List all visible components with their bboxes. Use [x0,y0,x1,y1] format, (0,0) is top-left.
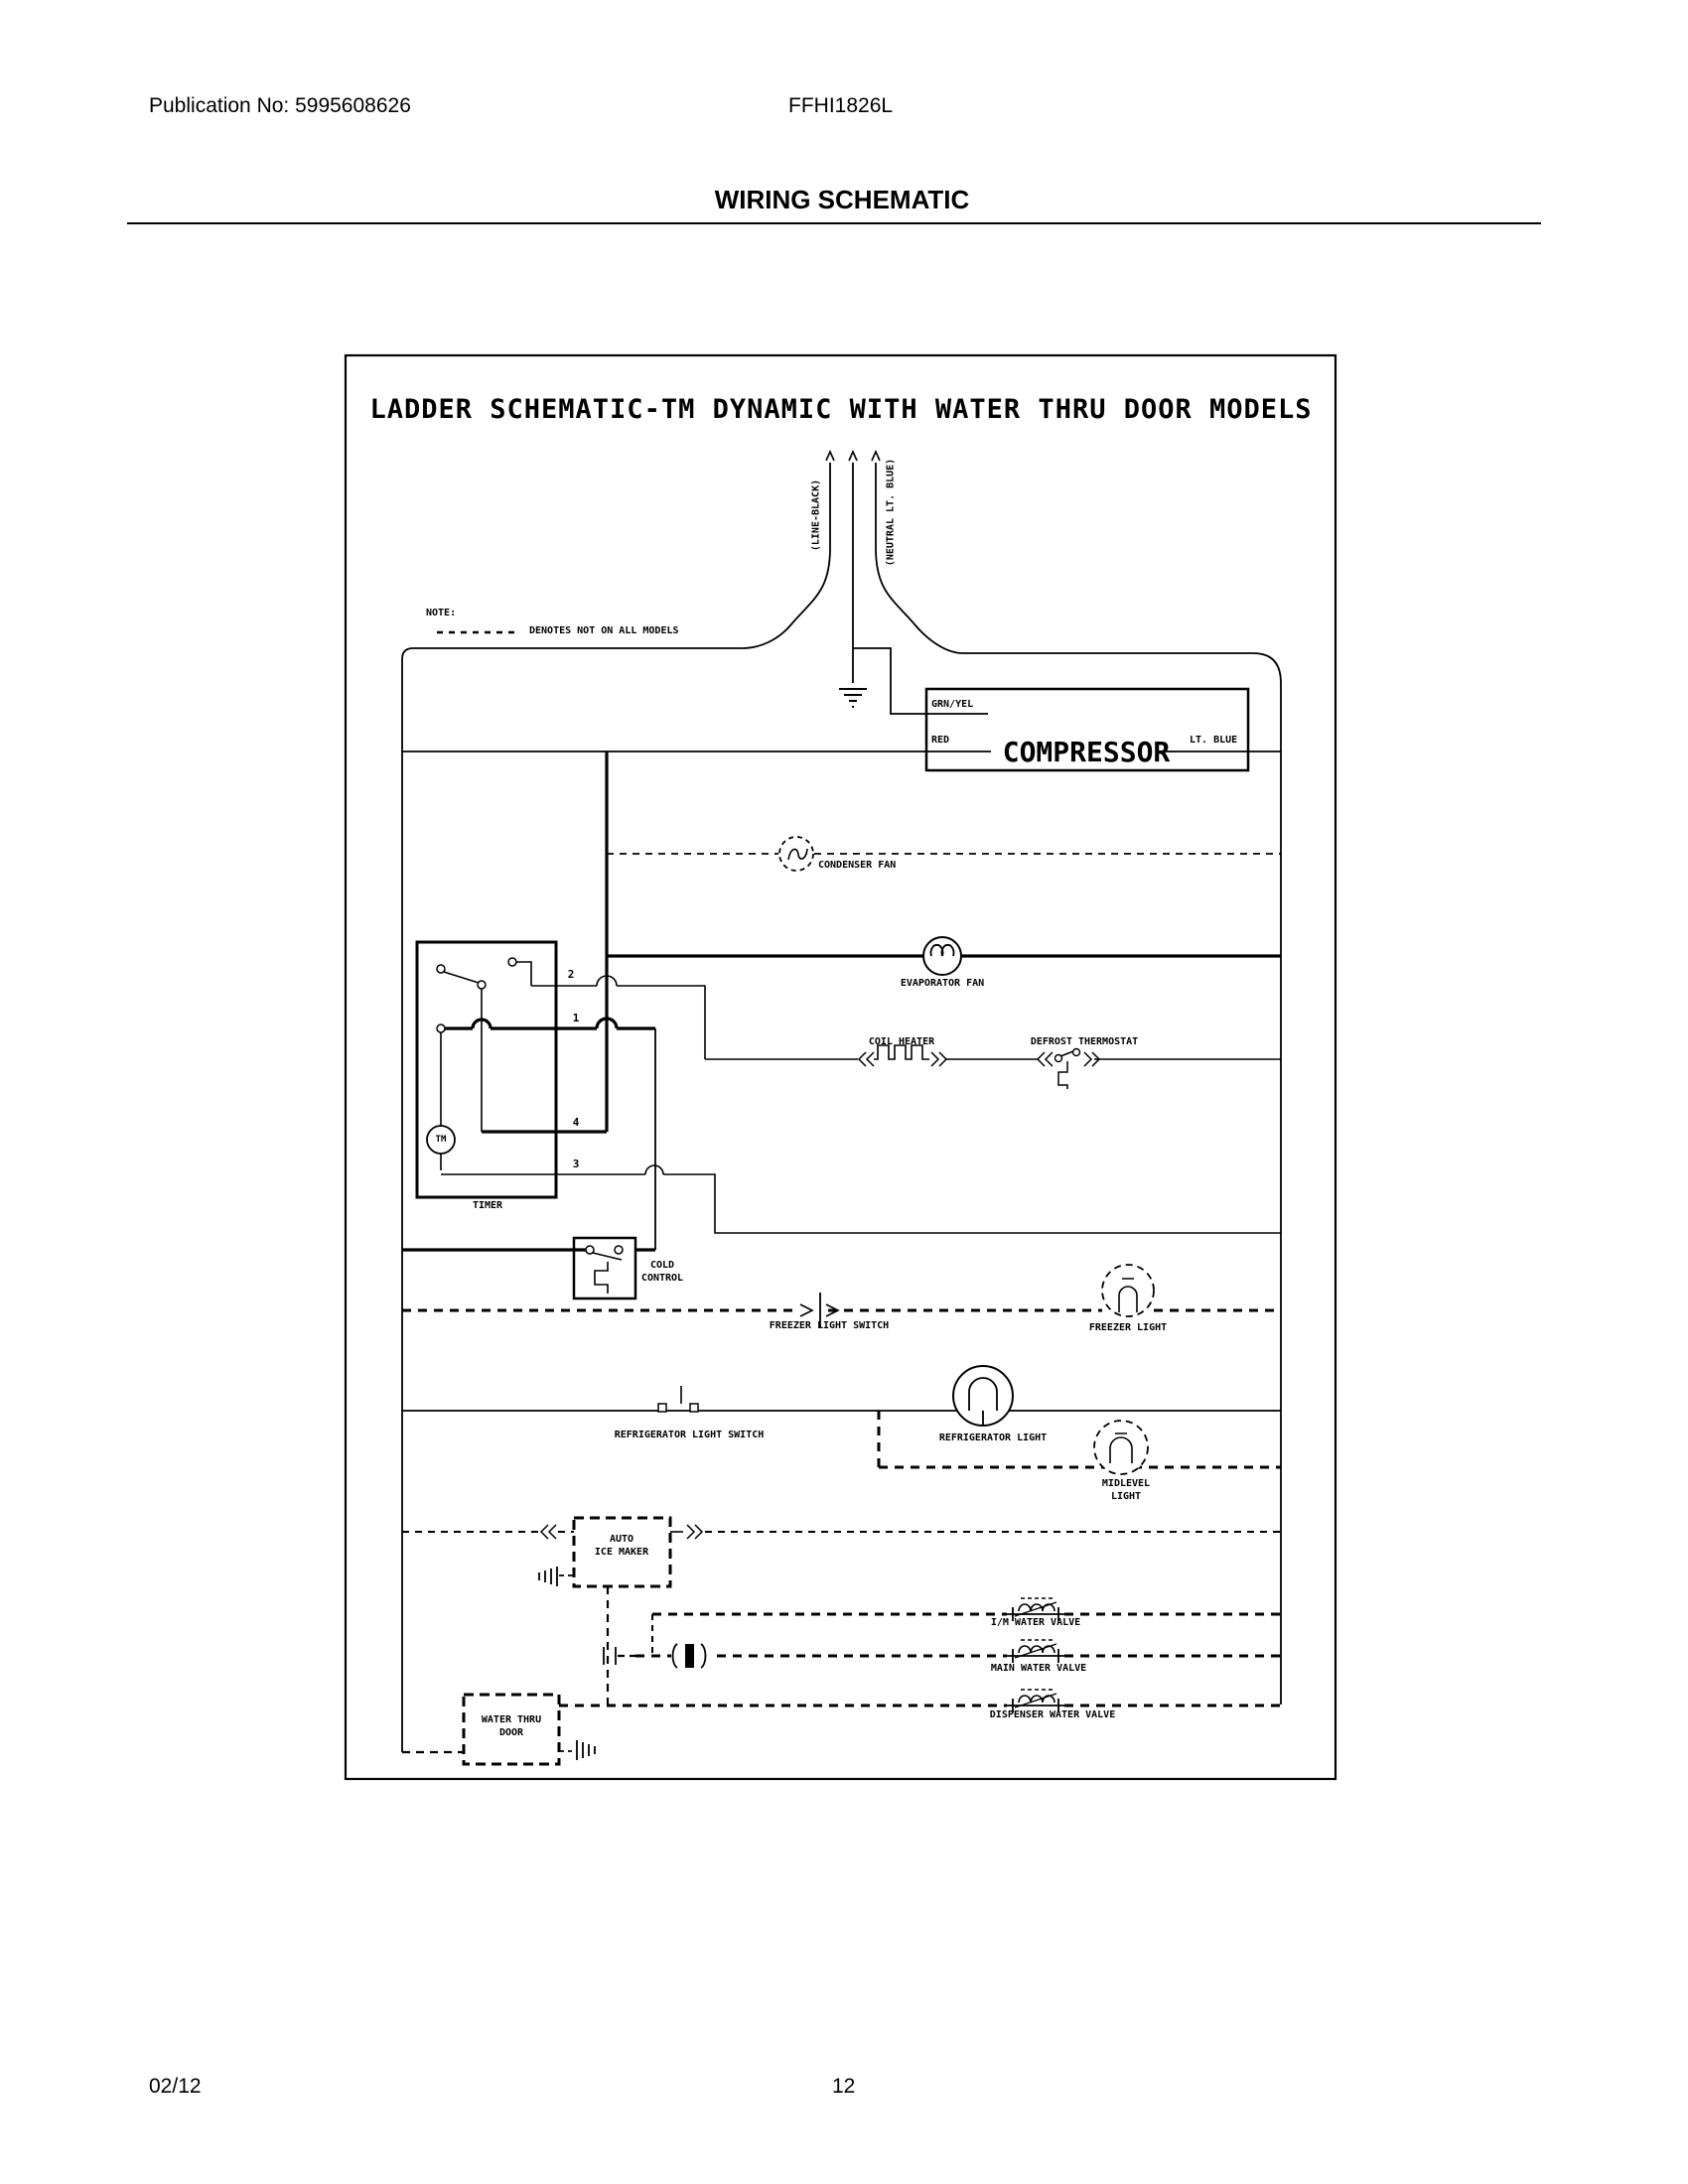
neutral-label: (NEUTRAL LT. BLUE) [886,459,897,566]
chassis-ground-icon [539,1567,557,1586]
fridge-switch-contact [658,1404,666,1412]
manual-page: Publication No: 5995608626 FFHI1826L WIR… [0,0,1688,2184]
lt-blue-label: LT. BLUE [1190,735,1237,746]
ice-maker-label-2: ICE MAKER [595,1547,648,1558]
timer-contact [437,965,445,973]
note-label: NOTE: [426,608,456,618]
connector-right-icon [931,1052,946,1066]
left-rail [402,463,830,1752]
connector-left-icon [541,1525,556,1539]
condenser-fan-label: CONDENSER FAN [818,860,896,871]
motor-winding-icon [931,945,954,956]
cold-contact [615,1246,623,1254]
cold-control-label-1: COLD [650,1260,674,1271]
midlevel-light-icon [1094,1421,1148,1474]
timer-terminal-4: 4 [573,1116,580,1129]
timer-line1 [441,1019,655,1028]
timer-terminal-1: 1 [573,1012,580,1024]
cold-contact [586,1246,594,1254]
timer-contact [437,1024,445,1032]
freezer-light-switch-label: FREEZER LIGHT SWITCH [770,1320,889,1331]
freezer-light-icon [1102,1265,1154,1316]
ground-wire [853,463,988,714]
timer-contact [478,981,486,989]
timer-line3 [441,1165,1281,1233]
connector-left-icon [1038,1052,1053,1066]
timer-motor-label: TM [436,1135,447,1145]
cold-control-label-2: CONTROL [641,1273,683,1284]
water-thru-door-label-1: WATER THRU [482,1714,541,1725]
evaporator-fan-label: EVAPORATOR FAN [901,978,984,989]
defrost-blade-icon [1060,1051,1073,1056]
footer-page-number: 12 [832,2075,855,2099]
right-rail [876,463,1281,1705]
compressor-label: COMPRESSOR [1003,736,1171,768]
ice-maker-label-1: AUTO [610,1534,633,1545]
freezer-light-label: FREEZER LIGHT [1089,1322,1167,1333]
timer-terminal-2: 2 [568,968,575,981]
midlevel-light-label-2: LIGHT [1111,1491,1141,1502]
plug-icon [701,1644,706,1668]
fridge-switch-contact [690,1404,698,1412]
earth-ground-icon [839,689,867,707]
timer-label: TIMER [473,1200,502,1211]
refrigerator-light-label: REFRIGERATOR LIGHT [939,1433,1047,1443]
line-black-label: (LINE-BLACK) [811,479,822,551]
midlevel-light-label-1: MIDLEVEL [1102,1478,1150,1489]
defrost-sensor-icon [1058,1061,1067,1089]
connector-right-icon [687,1525,702,1539]
timer-terminal-3: 3 [573,1158,580,1170]
plug-pin-icon [685,1644,694,1668]
chassis-ground-icon [577,1740,595,1760]
note-text: DENOTES NOT ON ALL MODELS [529,625,679,636]
refrigerator-light-switch-label: REFRIGERATOR LIGHT SWITCH [615,1430,765,1440]
grn-yel-label: GRN/YEL [931,699,973,710]
timer-box [417,942,556,1197]
schematic-title: LADDER SCHEMATIC-TM DYNAMIC WITH WATER T… [369,394,1312,425]
timer-contact [508,958,516,966]
cold-control-box [574,1238,635,1298]
water-thru-door-label-2: DOOR [499,1727,523,1738]
main-water-valve-label: MAIN WATER VALVE [991,1663,1086,1674]
valve-solenoid-icon [1007,1640,1064,1663]
coil-heater-icon [874,1045,929,1059]
footer-date: 02/12 [149,2075,202,2099]
dispenser-water-valve-label: DISPENSER WATER VALVE [990,1709,1115,1720]
schematic-frame [346,355,1336,1779]
condenser-fan-icon [779,837,813,871]
defrost-thermostat-label: DEFROST THERMOSTAT [1031,1036,1138,1047]
disconnect-icon [604,1647,616,1665]
red-label: RED [931,735,949,746]
coil-heater-label: COIL HEATER [869,1036,934,1047]
schematic-svg [0,0,1688,2184]
cold-bellows-icon [595,1262,608,1294]
supply-arrows [826,452,880,461]
plug-icon [673,1644,678,1668]
condenser-fan-blade-icon [788,849,807,860]
timer-blade-icon [444,972,479,983]
freezer-bulb-icon [1119,1279,1137,1312]
freezer-switch-arrow-icon [800,1304,812,1316]
connector-left-icon [859,1052,874,1066]
im-water-valve-label: I/M WATER VALVE [991,1617,1080,1628]
defrost-contact [1073,1049,1080,1056]
